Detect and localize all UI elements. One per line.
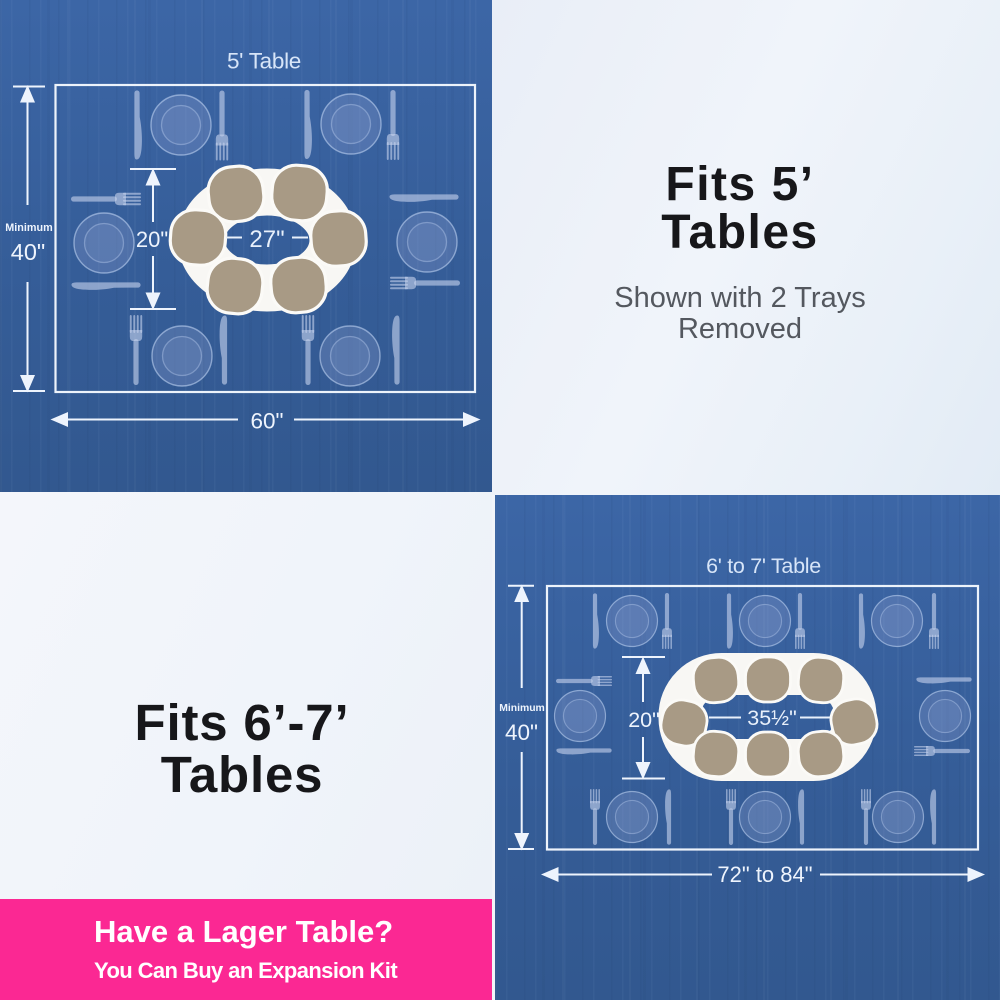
- svg-text:Minimum: Minimum: [5, 222, 52, 234]
- svg-text:27": 27": [249, 226, 284, 253]
- svg-text:6' to 7' Table: 6' to 7' Table: [706, 554, 821, 578]
- svg-text:35½": 35½": [747, 706, 796, 730]
- svg-text:20": 20": [628, 708, 660, 732]
- svg-text:60": 60": [250, 409, 283, 434]
- svg-text:Minimum: Minimum: [499, 703, 545, 714]
- svg-text:72" to 84": 72" to 84": [717, 862, 812, 887]
- svg-text:40": 40": [505, 720, 538, 745]
- svg-text:5' Table: 5' Table: [227, 49, 301, 74]
- svg-text:20": 20": [136, 227, 168, 252]
- svg-text:40": 40": [11, 239, 45, 265]
